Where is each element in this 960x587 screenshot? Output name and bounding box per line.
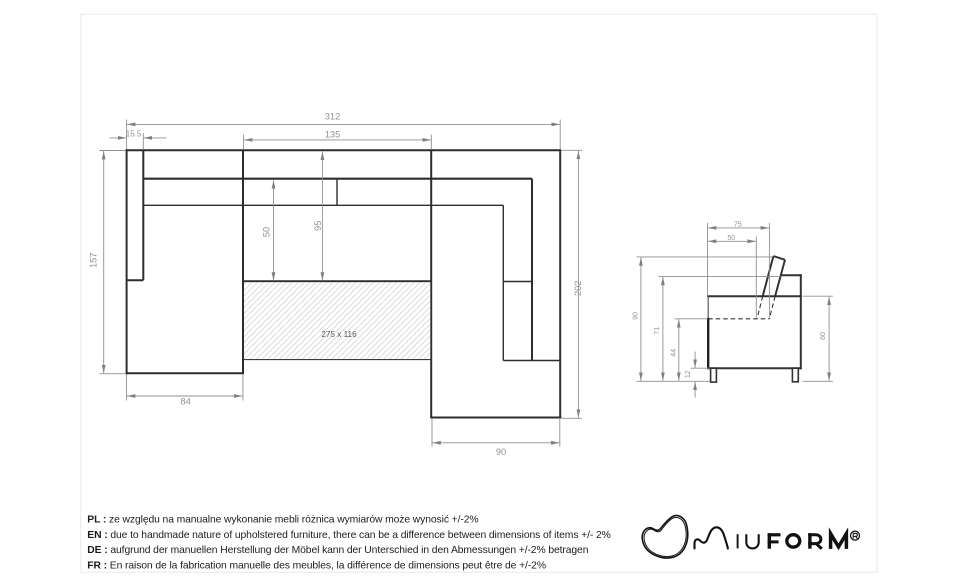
svg-text:95: 95	[313, 221, 323, 231]
svg-text:275 x 116: 275 x 116	[321, 330, 357, 339]
svg-text:202: 202	[573, 281, 583, 297]
svg-text:312: 312	[325, 111, 341, 121]
svg-text:71: 71	[654, 327, 661, 335]
svg-text:84: 84	[181, 397, 191, 407]
svg-text:15.5: 15.5	[126, 129, 142, 138]
svg-text:60: 60	[820, 332, 827, 340]
svg-text:DE : aufgrund der manuellen He: DE : aufgrund der manuellen Herstellung …	[87, 545, 588, 556]
svg-text:75: 75	[734, 222, 742, 229]
svg-text:90: 90	[633, 312, 640, 320]
svg-text:12: 12	[685, 370, 692, 378]
svg-text:157: 157	[88, 253, 98, 269]
svg-text:44: 44	[670, 349, 677, 357]
svg-text:EN : due to handmade nature of: EN : due to handmade nature of upholster…	[87, 530, 610, 541]
svg-text:50: 50	[727, 235, 735, 242]
svg-text:135: 135	[325, 129, 341, 139]
svg-text:50: 50	[262, 227, 272, 237]
svg-text:FR : En raison de la fabricati: FR : En raison de la fabrication manuell…	[87, 560, 546, 571]
svg-text:PL : ze względu na manualne wy: PL : ze względu na manualne wykonanie me…	[87, 515, 478, 526]
svg-text:90: 90	[496, 447, 506, 457]
